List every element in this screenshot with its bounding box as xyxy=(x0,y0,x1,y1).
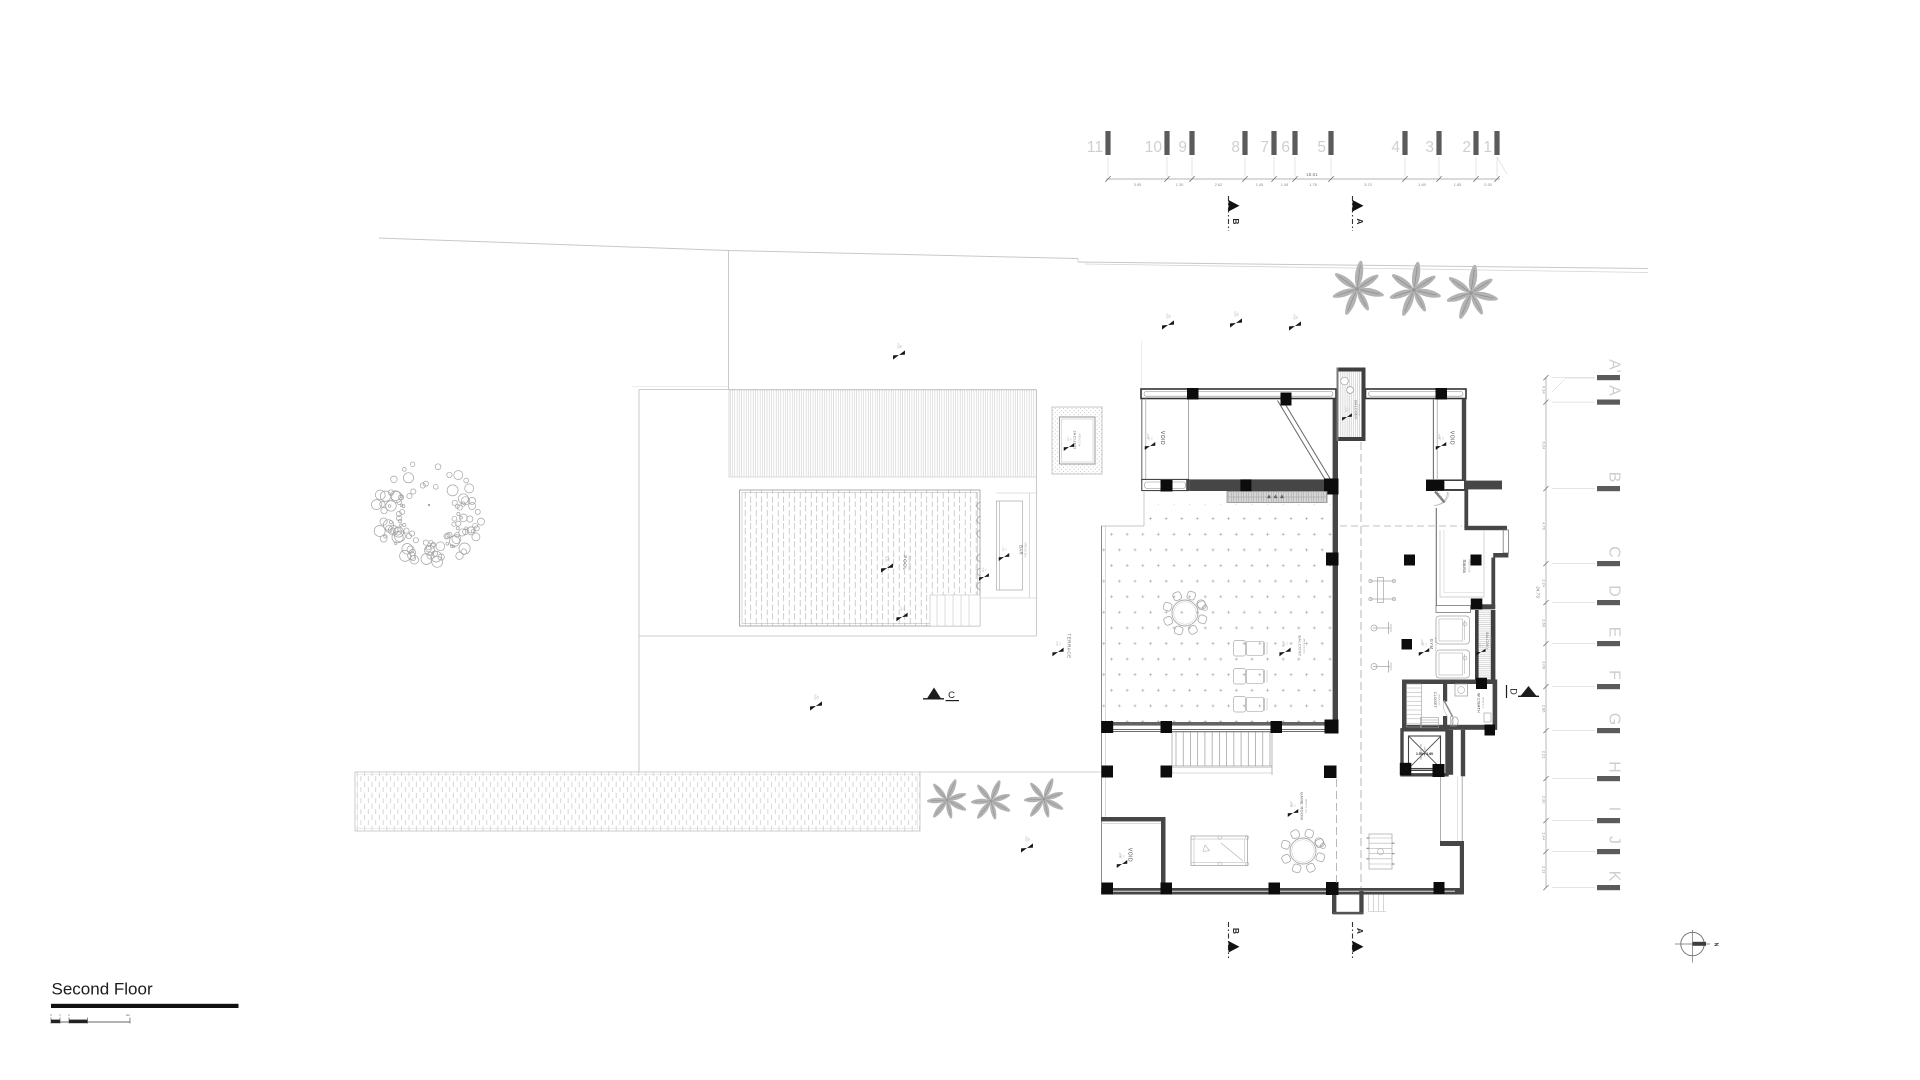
svg-text:3.95: 3.95 xyxy=(1134,182,1142,187)
svg-text:FFL: FFL xyxy=(1069,438,1071,441)
svg-text:+3.30: +3.30 xyxy=(1345,407,1347,412)
svg-text:BALCONY: BALCONY xyxy=(1485,632,1489,650)
svg-text:A: A xyxy=(1355,928,1365,934)
svg-text:FFL: FFL xyxy=(902,607,904,610)
svg-text:FFL: FFL xyxy=(1168,315,1170,318)
svg-text:4: 4 xyxy=(1391,139,1400,156)
svg-text:Second Floor: Second Floor xyxy=(52,980,153,999)
svg-text:FFL: FFL xyxy=(1058,642,1060,645)
svg-text:+3.30: +3.30 xyxy=(1055,641,1057,647)
svg-text:6: 6 xyxy=(1281,139,1290,156)
svg-text:2.32: 2.32 xyxy=(1542,796,1547,804)
svg-text:+3.30: +3.30 xyxy=(1233,311,1235,317)
svg-text:C: C xyxy=(948,690,955,701)
svg-text:+3.30: +3.30 xyxy=(1067,436,1069,441)
svg-text:TERRACE: TERRACE xyxy=(1067,633,1072,658)
svg-text:+3.30: +3.30 xyxy=(1437,433,1439,440)
svg-text:1.44: 1.44 xyxy=(1542,832,1547,840)
svg-text:AREA:16.0m: AREA:16.0m xyxy=(1468,559,1471,572)
svg-text:B: B xyxy=(1606,472,1623,483)
svg-text:BALCONY: BALCONY xyxy=(1298,635,1303,656)
svg-text:FFL: FFL xyxy=(1285,642,1287,645)
svg-text:+3.30: +3.30 xyxy=(1292,314,1294,320)
svg-text:FFL: FFL xyxy=(1441,437,1443,440)
svg-text:2.62: 2.62 xyxy=(1215,182,1223,187)
svg-text:A': A' xyxy=(1606,359,1623,373)
svg-text:8: 8 xyxy=(1231,139,1240,156)
svg-text:24.73: 24.73 xyxy=(1536,586,1541,598)
svg-text:10: 10 xyxy=(1145,139,1163,156)
svg-text:CLOSET: CLOSET xyxy=(1433,692,1437,709)
svg-text:FFL: FFL xyxy=(887,558,889,561)
svg-text:Sauna: Sauna xyxy=(1462,559,1467,573)
svg-text:2.21: 2.21 xyxy=(1542,751,1547,759)
svg-text:9: 9 xyxy=(1178,139,1187,156)
svg-text:D: D xyxy=(1606,585,1623,596)
svg-text:AREA:20.39 m: AREA:20.39 m xyxy=(1024,542,1027,557)
svg-text:3.70: 3.70 xyxy=(1364,182,1372,187)
svg-text:AREA:56.16m: AREA:56.16m xyxy=(1305,799,1308,813)
svg-text:0.34: 0.34 xyxy=(1542,386,1547,394)
svg-text:AREA:2.8m: AREA:2.8m xyxy=(1423,747,1426,758)
svg-text:FFL: FFL xyxy=(1004,548,1006,551)
svg-text:3: 3 xyxy=(1425,139,1434,156)
svg-text:AREA:4.9m: AREA:4.9m xyxy=(1438,694,1441,706)
svg-text:+3.30: +3.30 xyxy=(813,694,815,700)
svg-text:K: K xyxy=(1606,871,1623,882)
svg-text:AREA:8.0m: AREA:8.0m xyxy=(1489,636,1492,647)
svg-text:GYM: GYM xyxy=(1429,639,1434,650)
svg-text:I: I xyxy=(1606,807,1623,811)
svg-text:B: B xyxy=(1231,928,1241,934)
svg-text:AREA:87.56m: AREA:87.56m xyxy=(908,556,911,571)
svg-text:+3.30: +3.30 xyxy=(1146,433,1148,440)
svg-text:-0.30: -0.30 xyxy=(899,606,901,612)
svg-text:+3.30: +3.30 xyxy=(1479,643,1481,647)
svg-text:FFL: FFL xyxy=(1122,855,1124,858)
svg-text:VOID: VOID xyxy=(1449,431,1455,445)
svg-text:4m: 4m xyxy=(126,1013,131,1017)
svg-text:7: 7 xyxy=(1260,139,1269,156)
svg-text:B: B xyxy=(1231,218,1241,224)
svg-text:BAR: BAR xyxy=(1019,545,1024,555)
svg-text:AREA:9.0m: AREA:9.0m xyxy=(1358,404,1361,416)
svg-text:POOL: POOL xyxy=(903,555,908,570)
svg-text:1.08: 1.08 xyxy=(1281,182,1289,187)
svg-text:2: 2 xyxy=(1462,139,1471,156)
svg-text:FFL: FFL xyxy=(1424,643,1426,646)
svg-text:N: N xyxy=(1713,943,1719,947)
svg-text:FFL: FFL xyxy=(1295,316,1297,319)
svg-text:1.78: 1.78 xyxy=(1309,182,1317,187)
svg-text:18.61: 18.61 xyxy=(1306,172,1318,177)
svg-text:5: 5 xyxy=(1317,139,1326,156)
svg-text:W.C/BATH: W.C/BATH xyxy=(1477,693,1481,713)
svg-text:A: A xyxy=(1355,218,1365,224)
svg-text:+3.30: +3.30 xyxy=(1420,639,1422,646)
svg-text:1.85: 1.85 xyxy=(1454,182,1462,187)
svg-text:11: 11 xyxy=(1087,139,1103,156)
svg-text:H: H xyxy=(1606,761,1623,772)
svg-text:+3.30: +3.30 xyxy=(1165,313,1167,319)
svg-text:6.24: 6.24 xyxy=(1542,442,1547,450)
svg-text:+3.30: +3.30 xyxy=(896,343,898,349)
svg-text:1.69: 1.69 xyxy=(1418,182,1426,187)
svg-text:J: J xyxy=(1606,836,1623,844)
svg-text:FFL: FFL xyxy=(1027,838,1029,841)
svg-text:+3.30: +3.30 xyxy=(982,567,984,572)
svg-text:F: F xyxy=(1606,670,1623,680)
svg-text:1.30: 1.30 xyxy=(1176,182,1184,187)
svg-text:VOID: VOID xyxy=(1159,431,1165,445)
svg-text:AREA:22.40m: AREA:22.40m xyxy=(1434,637,1437,651)
svg-text:+3.30: +3.30 xyxy=(1281,641,1283,648)
svg-text:+3.30: +3.30 xyxy=(1118,852,1120,859)
svg-text:AREA:126.18m: AREA:126.18m xyxy=(1303,638,1306,653)
svg-text:2.60: 2.60 xyxy=(1542,619,1547,627)
svg-text:AREA:4.6m: AREA:4.6m xyxy=(1482,697,1485,709)
svg-text:C: C xyxy=(1606,546,1623,557)
svg-text:+3.30: +3.30 xyxy=(1002,546,1004,551)
svg-text:FFL: FFL xyxy=(1150,437,1152,440)
svg-text:+3.30: +3.30 xyxy=(1024,836,1026,842)
svg-text:2.86: 2.86 xyxy=(1542,705,1547,713)
svg-text:2.11: 2.11 xyxy=(1542,866,1547,873)
svg-text:GAME ROOM: GAME ROOM xyxy=(1300,792,1305,820)
svg-text:A: A xyxy=(1606,385,1623,396)
svg-text:FFL: FFL xyxy=(816,696,818,699)
svg-text:E: E xyxy=(1606,627,1623,638)
svg-text:1: 1 xyxy=(1483,139,1492,156)
svg-text:2.09: 2.09 xyxy=(1542,661,1547,669)
svg-text:+1.30: +1.30 xyxy=(884,556,886,562)
svg-text:1.45: 1.45 xyxy=(1256,182,1264,187)
svg-text:0.30: 0.30 xyxy=(1484,182,1492,187)
svg-text:+3.30: +3.30 xyxy=(1289,801,1291,808)
svg-text:BALCONY: BALCONY xyxy=(1354,400,1358,420)
svg-text:FFL: FFL xyxy=(1293,804,1295,807)
svg-text:FFL: FFL xyxy=(899,345,901,348)
svg-text:D: D xyxy=(1509,688,1519,695)
svg-text:VOID: VOID xyxy=(1127,848,1133,862)
svg-text:G: G xyxy=(1606,713,1623,725)
svg-text:2.24: 2.24 xyxy=(1542,579,1547,587)
svg-text:FFL: FFL xyxy=(1236,313,1238,316)
svg-text:4.70: 4.70 xyxy=(1542,522,1547,530)
svg-text:ELEVATOR: ELEVATOR xyxy=(1419,744,1423,760)
svg-text:AREA:12.7m: AREA:12.7m xyxy=(1078,433,1081,446)
